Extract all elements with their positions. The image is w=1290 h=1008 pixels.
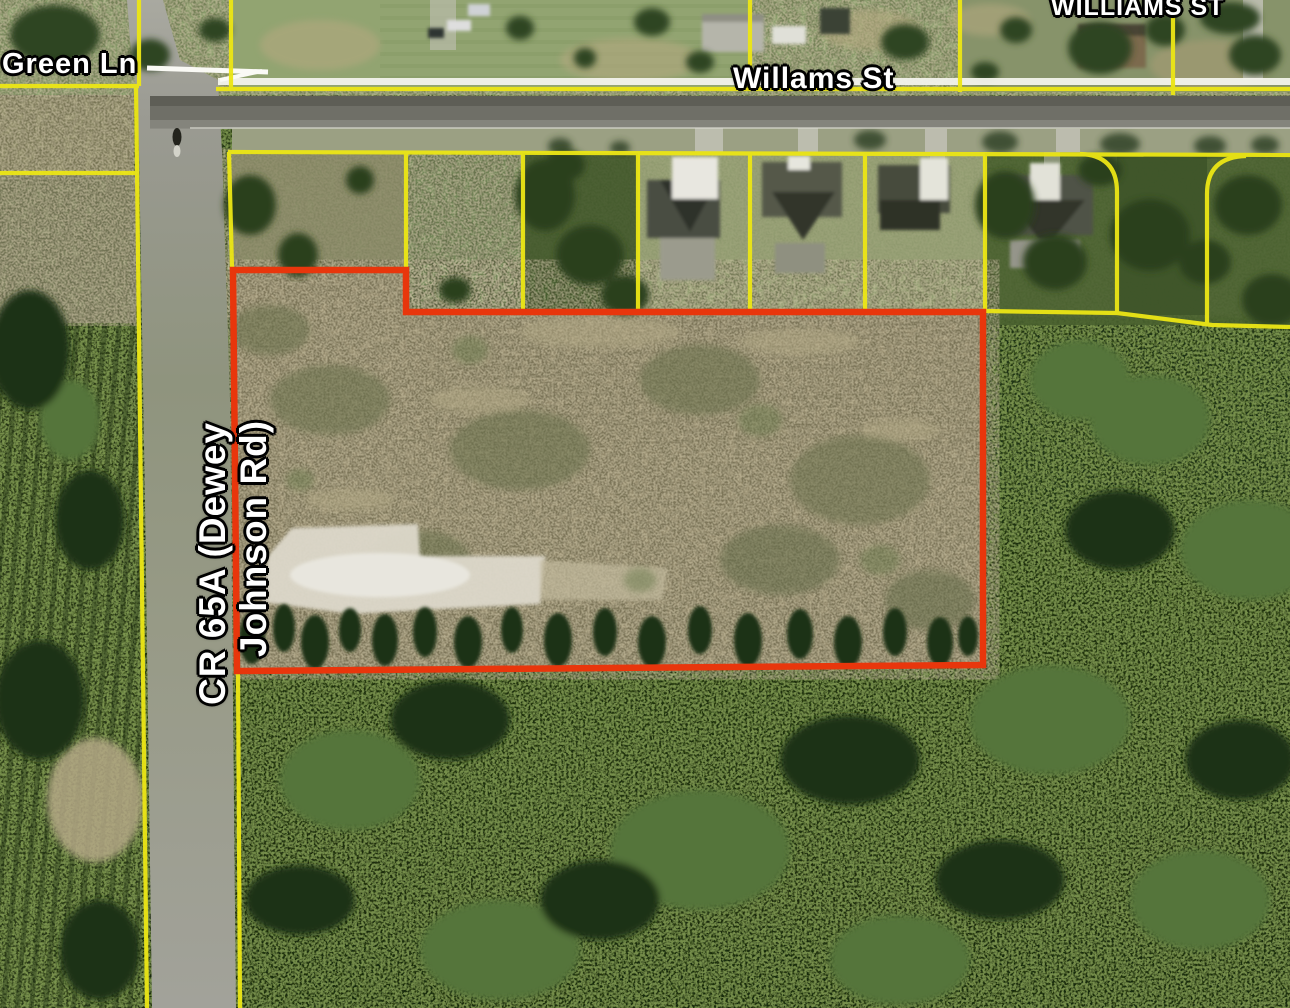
west-scrub-1 — [0, 86, 134, 173]
aerial-parcel-map: Green Ln Willams St WILLIAMS ST CR 65A (… — [0, 0, 1290, 1008]
cr65a-label-line2: Johnson Rd) — [233, 385, 274, 657]
parcel-line-below-subject — [238, 670, 240, 1008]
green-ln-label: Green Ln — [2, 48, 137, 81]
parcel-line-south-v0 — [229, 152, 232, 268]
parcel-line-south-row-long — [228, 152, 1290, 155]
cr65a-road-label: CR 65A (Dewey Johnson Rd) — [192, 385, 274, 705]
cr65a-label-line1: CR 65A (Dewey — [192, 385, 233, 705]
house-3 — [878, 158, 950, 230]
willams-st-label: Willams St — [733, 62, 894, 96]
williams-st-upper-label: WILLIAMS ST — [1051, 0, 1224, 22]
willams-st-asphalt-dark — [150, 96, 1290, 106]
pedestrian — [173, 128, 182, 157]
subject-parcel-field — [230, 268, 984, 671]
dirt-patch — [47, 738, 143, 862]
